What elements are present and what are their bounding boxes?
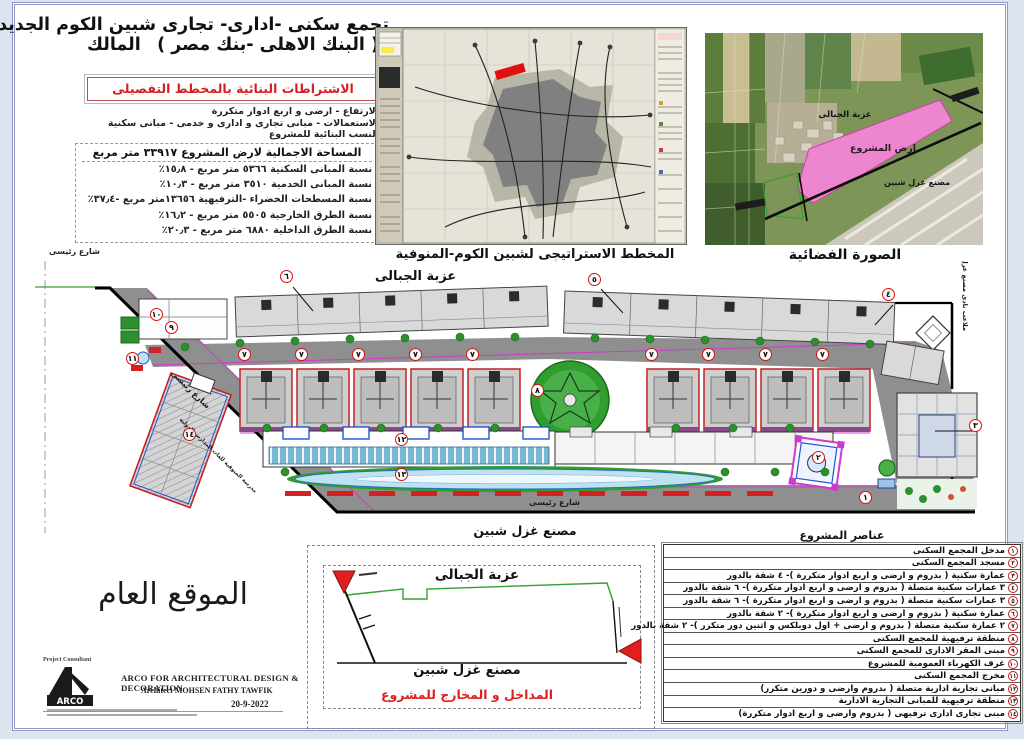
element-row: ١١مخرج المجمع السكنى [664, 670, 1020, 683]
element-row: ١٠غرف الكهرباء العمومية للمشروع [664, 658, 1020, 671]
areas-table: المساحة الاجمالية لارض المشروع ٣٣٩١٧ متر… [75, 143, 379, 243]
street-topleft-label: شارع رئيسى [49, 247, 100, 256]
element-label: ٣ عمارات سكنية متصلة ( بدروم و ارضى و ار… [683, 595, 1005, 607]
element-number: ٩ [1008, 646, 1018, 656]
project-title: تجمع سكنى -ادارى- تجارى شبين الكوم الجدي… [77, 15, 389, 35]
element-row: ٨منطقة ترفيهية للمجمع السكنى [664, 633, 1020, 646]
project-elements: عناصر المشروع ١مدخل المجمع السكنى٢مسجد ا… [663, 529, 1021, 722]
element-row: ٩مبنى المقر الادارى للمجمع السكنى [664, 645, 1020, 658]
plan-marker-٥: ٥ [588, 273, 601, 286]
plan-marker-١: ١ [859, 491, 872, 504]
plan-marker-٤: ٤ [882, 288, 895, 301]
element-number: ١٢ [1008, 684, 1018, 694]
entrances-caption: المداخل و المخارج للمشروع [367, 687, 567, 702]
element-row: ٢مسجد المجمع السكنى [664, 558, 1020, 571]
element-number: ١٤ [1008, 709, 1018, 719]
project-elements-header: عناصر المشروع [663, 529, 1021, 542]
aerial-photo: عزبة الجبالى ارض المشروع مصنع غزل شبين [705, 33, 983, 245]
consultant-contact-line [47, 714, 197, 716]
plan-marker-٩: ٩ [165, 321, 178, 334]
plan-marker-٧: ٧ [352, 348, 365, 361]
consultant-block: Project Consultant ARCO ARCO FOR ARCHITE… [43, 657, 343, 663]
area-row: نسبة المبانى السكنية ٥٣٦٦ متر مربع - ١٥٫… [82, 162, 372, 177]
element-label: مسجد المجمع السكنى [912, 557, 1005, 569]
plan-marker-٧: ٧ [238, 348, 251, 361]
element-number: ١ [1008, 546, 1018, 556]
exit-arrow-right [619, 639, 641, 663]
element-number: ٨ [1008, 634, 1018, 644]
element-row: ٦عمارة سكنية ( بدروم و ارضى و اربع ادوار… [664, 608, 1020, 621]
plan-marker-١٠: ١٠ [150, 308, 163, 321]
project-elements-table: ١مدخل المجمع السكنى٢مسجد المجمع السكنى٣ع… [663, 544, 1021, 722]
element-row: ٣عمارة سكنية ( بدروم و ارضى و اربع ادوار… [664, 570, 1020, 583]
element-label: عمارة سكنية ( بدروم و ارضى و اربع ادوار … [727, 570, 1005, 582]
consultant-architect: Architect MOHSEN FATHY TAWFIK [141, 686, 273, 695]
building-requirements-lines: الارتفاع - ارضى و اربع ادوار متكررةالاست… [75, 106, 379, 141]
element-number: ٥ [1008, 596, 1018, 606]
requirement-line: الاستعمالات - مبانى تجارى و ادارى و خدمى… [75, 118, 379, 130]
plan-marker-٧: ٧ [466, 348, 479, 361]
plan-marker-٧: ٧ [702, 348, 715, 361]
element-number: ٣ [1008, 571, 1018, 581]
aerial-factory-label: مصنع غزل شبين [884, 178, 950, 187]
element-label: مبنى المقر الادارى للمجمع السكنى [857, 645, 1005, 657]
plan-markers: ١٢٣٤٥٦٧٧٧٧٧٧٧٧٧٨٩١٠١١١٢١٣١٤ [35, 261, 1021, 537]
element-number: ٢ [1008, 558, 1018, 568]
plan-marker-١٤: ١٤ [183, 428, 196, 441]
strategic-map-caption: المخطط الاستراتيجى لشبين الكوم-المنوفية [395, 247, 675, 262]
entrance-arrow-left [333, 571, 355, 593]
plan-marker-١٣: ١٣ [395, 468, 408, 481]
plan-marker-١١: ١١ [126, 352, 139, 365]
divider [43, 711, 283, 712]
area-row: نسبة الطرق الداخلية ٦٨٨٠ متر مربع - ٢٠٫٣… [82, 223, 372, 238]
areas-table-rows: نسبة المبانى السكنية ٥٣٦٦ متر مربع - ١٥٫… [82, 162, 372, 238]
element-number: ٦ [1008, 609, 1018, 619]
requirement-line: النسب البنائية للمشروع [75, 129, 379, 141]
element-label: عمارة سكنية ( بدروم و ارضى و اربع ادوار … [727, 608, 1005, 620]
element-label: مدخل المجمع السكنى [913, 545, 1005, 557]
element-row: ٥٣ عمارات سكنية متصلة ( بدروم و ارضى و ا… [664, 595, 1020, 608]
element-number: ١٣ [1008, 696, 1018, 706]
general-site-title: الموقع العام [63, 577, 283, 612]
plan-marker-٧: ٧ [759, 348, 772, 361]
plan-marker-٣: ٣ [969, 419, 982, 432]
element-number: ٧ [1008, 621, 1018, 631]
strategic-map [375, 27, 687, 245]
element-number: ٤ [1008, 583, 1018, 593]
title-block: تجمع سكنى -ادارى- تجارى شبين الكوم الجدي… [77, 15, 389, 55]
plan-marker-٢: ٢ [812, 451, 825, 464]
owner-line: ( البنك الاهلى -بنك مصر ) المالك [77, 35, 389, 55]
area-row: نسبة الطرق الخارجية ٥٥٠٥ متر مربع - ١٦٫٢… [82, 208, 372, 223]
element-label: مبنى تجارى ادارى ترفيهى ( بدروم وارضى و … [738, 708, 1005, 720]
element-label: منطقة ترفيهية للمبانى التجارية الادارية [839, 695, 1005, 707]
plan-marker-٧: ٧ [409, 348, 422, 361]
plan-marker-٧: ٧ [645, 348, 658, 361]
element-label: منطقة ترفيهية للمجمع السكنى [873, 633, 1005, 645]
element-row: ١٣منطقة ترفيهية للمبانى التجارية الاداري… [664, 696, 1020, 709]
element-label: مخرج المجمع السكنى [914, 670, 1005, 682]
element-label: ٣ عمارات سكنية متصلة ( بدروم و ارضى و ار… [683, 582, 1005, 594]
element-row: ١مدخل المجمع السكنى [664, 545, 1020, 558]
plan-sheet: تجمع سكنى -ادارى- تجارى شبين الكوم الجدي… [12, 2, 1008, 731]
plan-marker-٨: ٨ [531, 384, 544, 397]
entrances-factory-label: مصنع غزل شبين [387, 663, 547, 678]
site-plan: شارع رئيسى شارع رئيسى مدرسة المنوفية للغ… [35, 261, 1021, 537]
plan-marker-٦: ٦ [280, 270, 293, 283]
plan-marker-٧: ٧ [816, 348, 829, 361]
sheet-date: 20-9-2022 [231, 699, 269, 709]
building-requirements-title: الاشتراطات البنائية بالمخطط التفصيلى [87, 77, 379, 101]
element-row: ٧٢ عمارة سكنية متصلة ( بدروم و ارضى + او… [664, 620, 1020, 633]
factory-label: مصنع غزل شبين [415, 523, 635, 538]
aerial-village-label: عزبة الجبالى [818, 110, 871, 120]
plan-marker-٧: ٧ [295, 348, 308, 361]
element-number: ١٠ [1008, 659, 1018, 669]
requirement-line: الارتفاع - ارضى و اربع ادوار متكررة [75, 106, 379, 118]
arco-logo-text: ARCO [57, 697, 84, 707]
owner-label: المالك [87, 35, 141, 55]
entrances-exits-box: عزبة الجبالى مصنع غزل شبين المداخل و الم… [307, 545, 657, 731]
consultant-role: Project Consultant [43, 657, 343, 663]
plan-marker-١٢: ١٢ [395, 433, 408, 446]
aerial-site-label: ارض المشروع [850, 143, 916, 154]
element-row: ١٤مبنى تجارى ادارى ترفيهى ( بدروم وارضى … [664, 708, 1020, 721]
area-row: نسبة المبانى الخدمية ٣٥١٠ متر مربع - ١٠٫… [82, 177, 372, 192]
area-row: نسبة المسطحات الخضراء -الترفيهية ١٣٦٥٦مت… [82, 192, 372, 207]
element-row: ٤٣ عمارات سكنية متصلة ( بدروم و ارضى و ا… [664, 583, 1020, 596]
arco-logo: ARCO [45, 665, 107, 707]
element-label: مبانى تجارية ادارية متصلة ( بدروم وارضى … [760, 683, 1005, 695]
areas-table-header: المساحة الاجمالية لارض المشروع ٣٣٩١٧ متر… [82, 146, 372, 162]
owner-value: ( البنك الاهلى -بنك مصر ) [157, 35, 379, 55]
element-row: ١٢مبانى تجارية ادارية متصلة ( بدروم وارض… [664, 683, 1020, 696]
element-number: ١١ [1008, 671, 1018, 681]
element-label: غرف الكهرباء العمومية للمشروع [868, 658, 1005, 670]
entrances-village-label: عزبة الجبالى [397, 567, 557, 583]
element-label: ٢ عمارة سكنية متصلة ( بدروم و ارضى + اول… [631, 620, 1005, 632]
